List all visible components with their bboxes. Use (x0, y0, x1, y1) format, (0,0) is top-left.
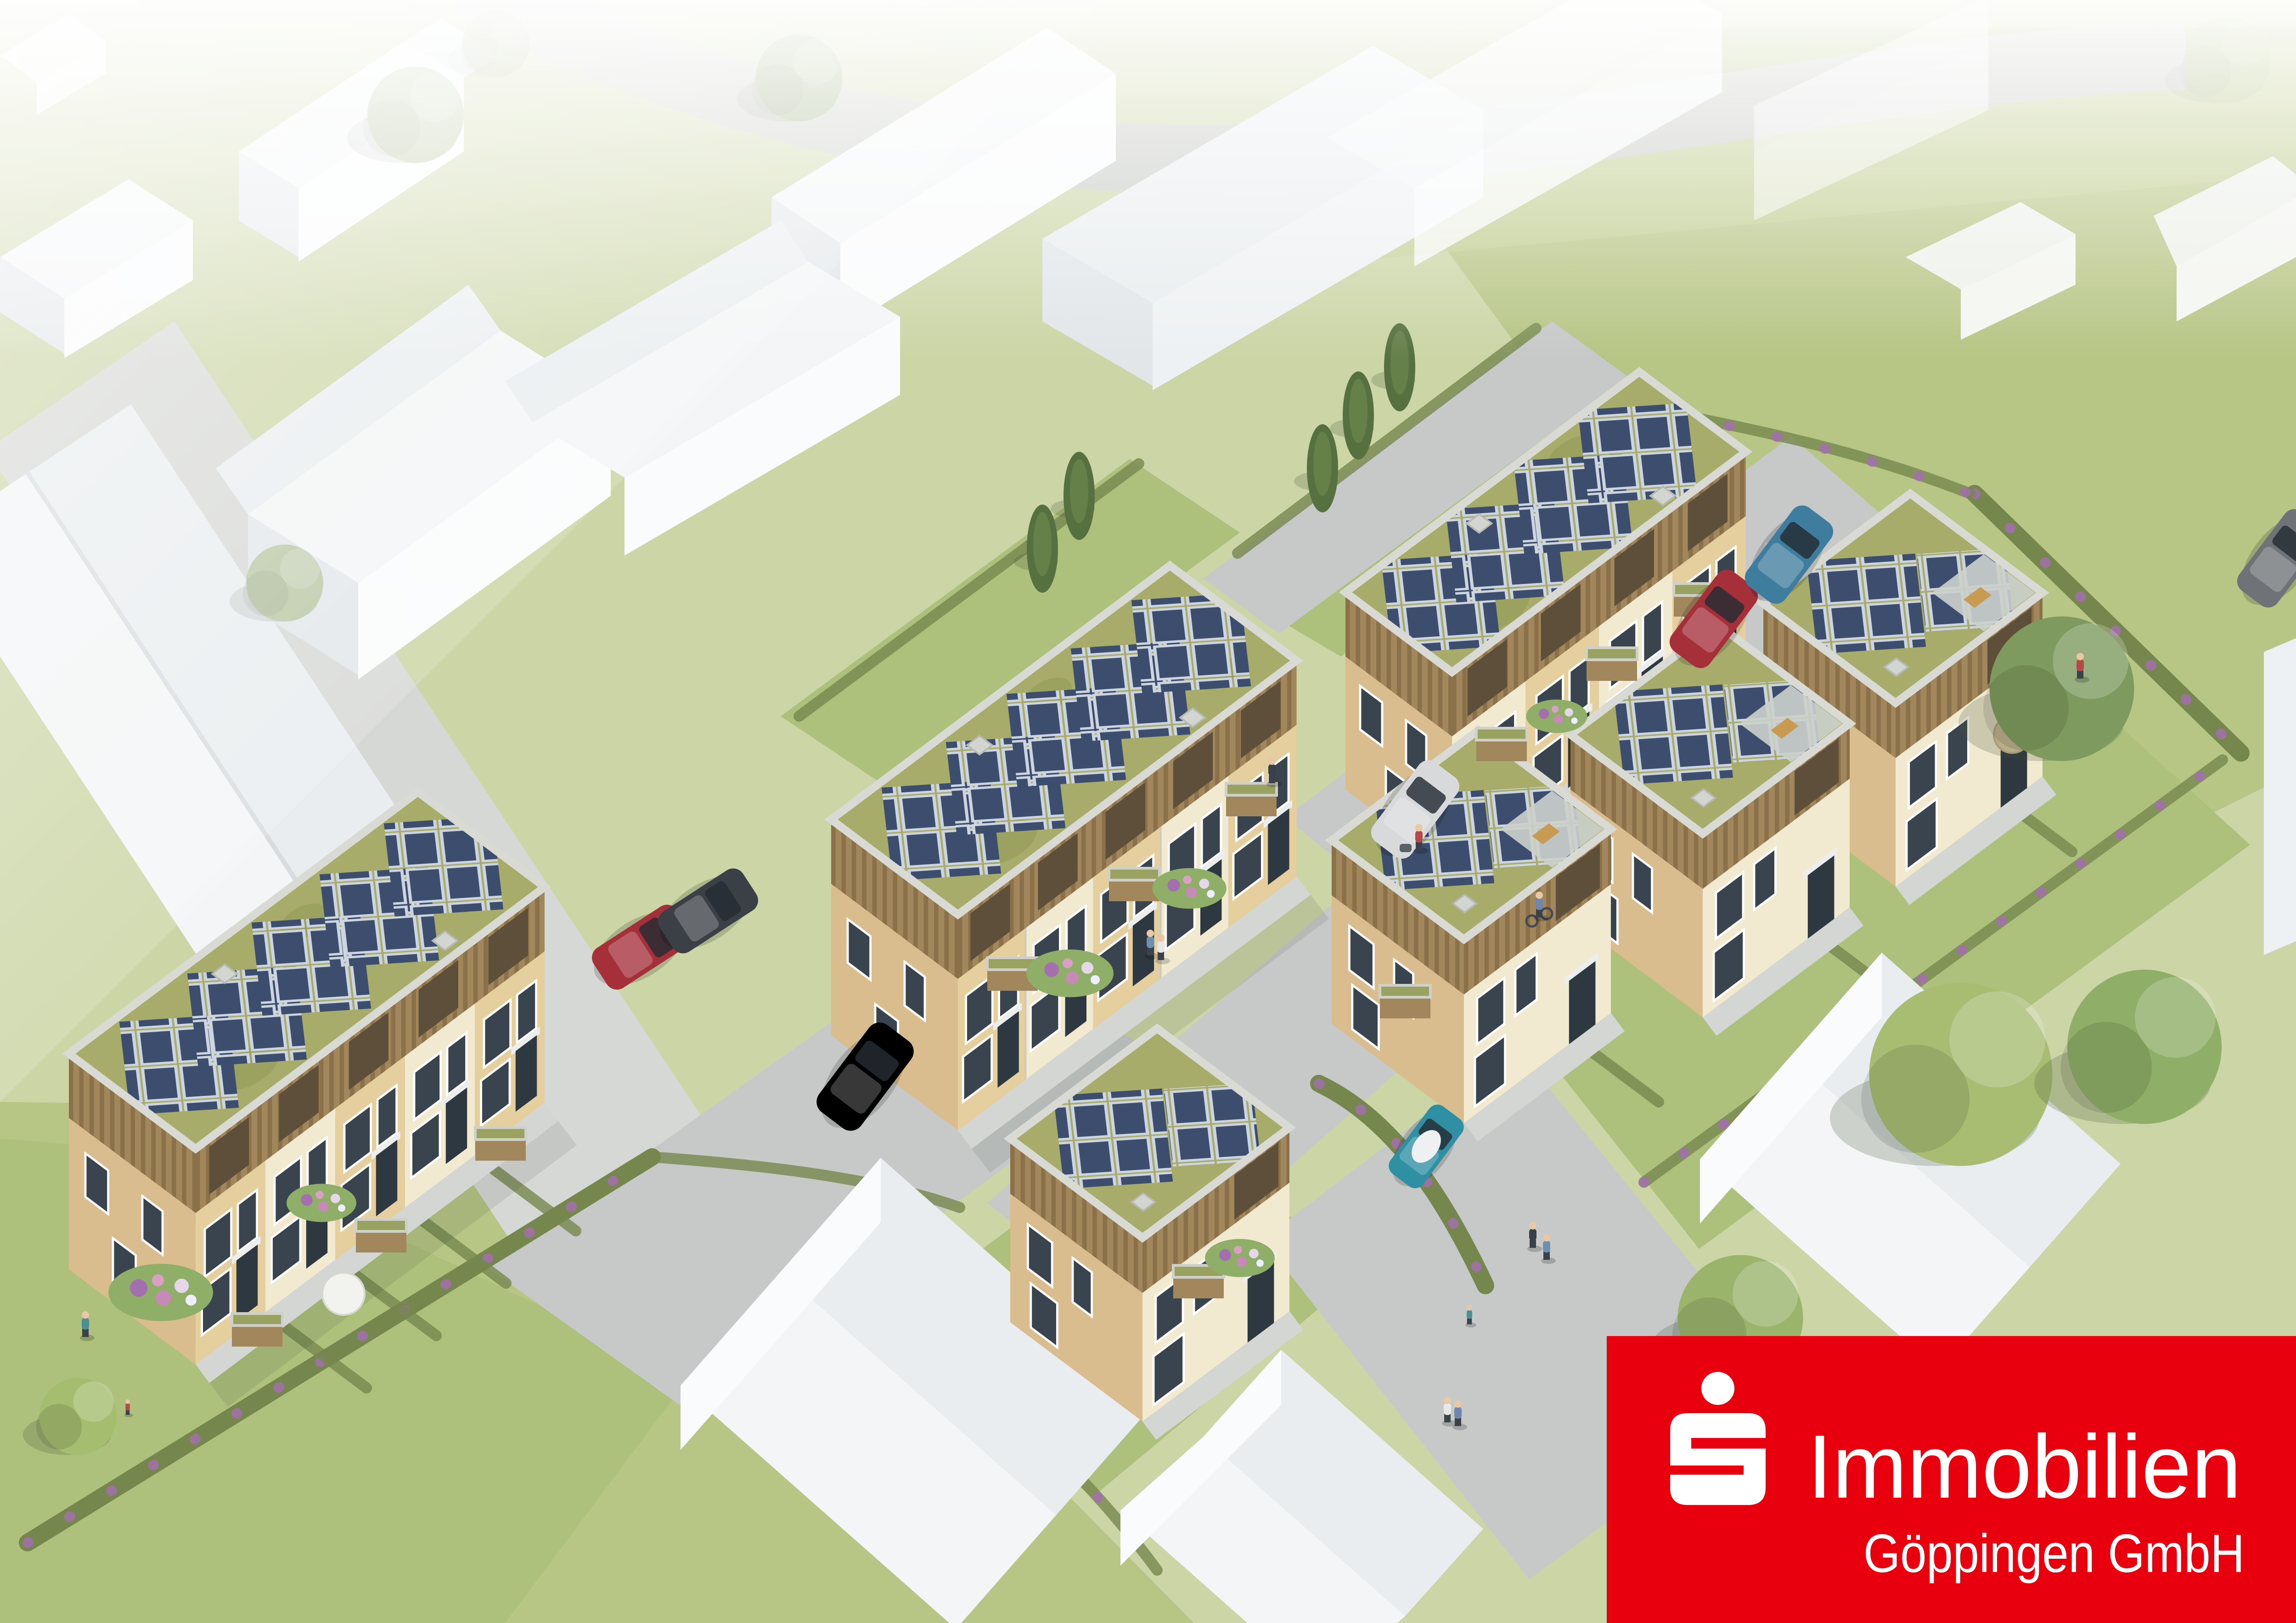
aerial-rendering-stage: Immobilien Göppingen GmbH (0, 0, 2296, 1623)
aerial-rendering: Immobilien Göppingen GmbH (0, 0, 2296, 1623)
context-slab-right-edge (2264, 638, 2296, 955)
white-parasol (322, 1273, 365, 1315)
logo-plate: Immobilien Göppingen GmbH (1607, 1336, 2296, 1623)
logo-line1: Immobilien (1807, 1416, 2241, 1517)
logo-line2: Göppingen GmbH (1863, 1523, 2245, 1584)
